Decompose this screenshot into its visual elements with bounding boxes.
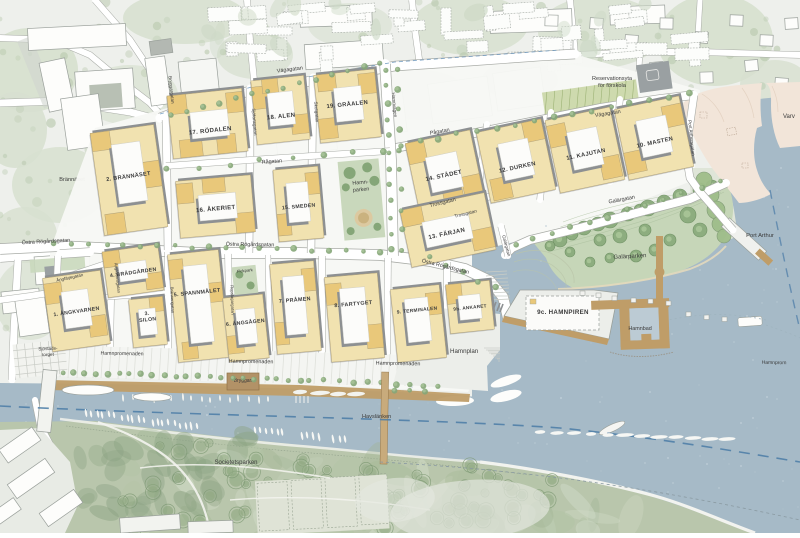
svg-text:Hamnbad: Hamnbad: [628, 326, 651, 332]
svg-text:Reservationsyta: Reservationsyta: [592, 76, 633, 82]
svg-text:Brännerigatan: Brännerigatan: [170, 287, 176, 314]
svg-text:Varv: Varv: [783, 114, 795, 120]
svg-text:9c. HAMNPIREN: 9c. HAMNPIREN: [537, 309, 589, 316]
svg-text:Hamnpromenaden: Hamnpromenaden: [376, 361, 421, 368]
svg-text:Hamnprom: Hamnprom: [762, 360, 787, 366]
svg-text:Hamnplan: Hamnplan: [450, 348, 479, 355]
svg-text:Sjöstads-: Sjöstads-: [38, 346, 58, 352]
svg-text:för förskola: för förskola: [598, 83, 627, 89]
svg-text:Hamnpromenaden: Hamnpromenaden: [100, 351, 143, 358]
svg-text:Repslagargatan: Repslagargatan: [229, 285, 235, 315]
svg-text:torget: torget: [42, 352, 55, 357]
svg-text:Rågatan: Rågatan: [261, 157, 282, 165]
svg-text:Hamnpromenaden: Hamnpromenaden: [229, 359, 274, 366]
svg-text:Societetsparken: Societetsparken: [214, 460, 257, 466]
svg-text:Port Arthur: Port Arthur: [746, 233, 774, 239]
svg-text:Östra Rögårdsgatan: Östra Rögårdsgatan: [226, 241, 275, 249]
